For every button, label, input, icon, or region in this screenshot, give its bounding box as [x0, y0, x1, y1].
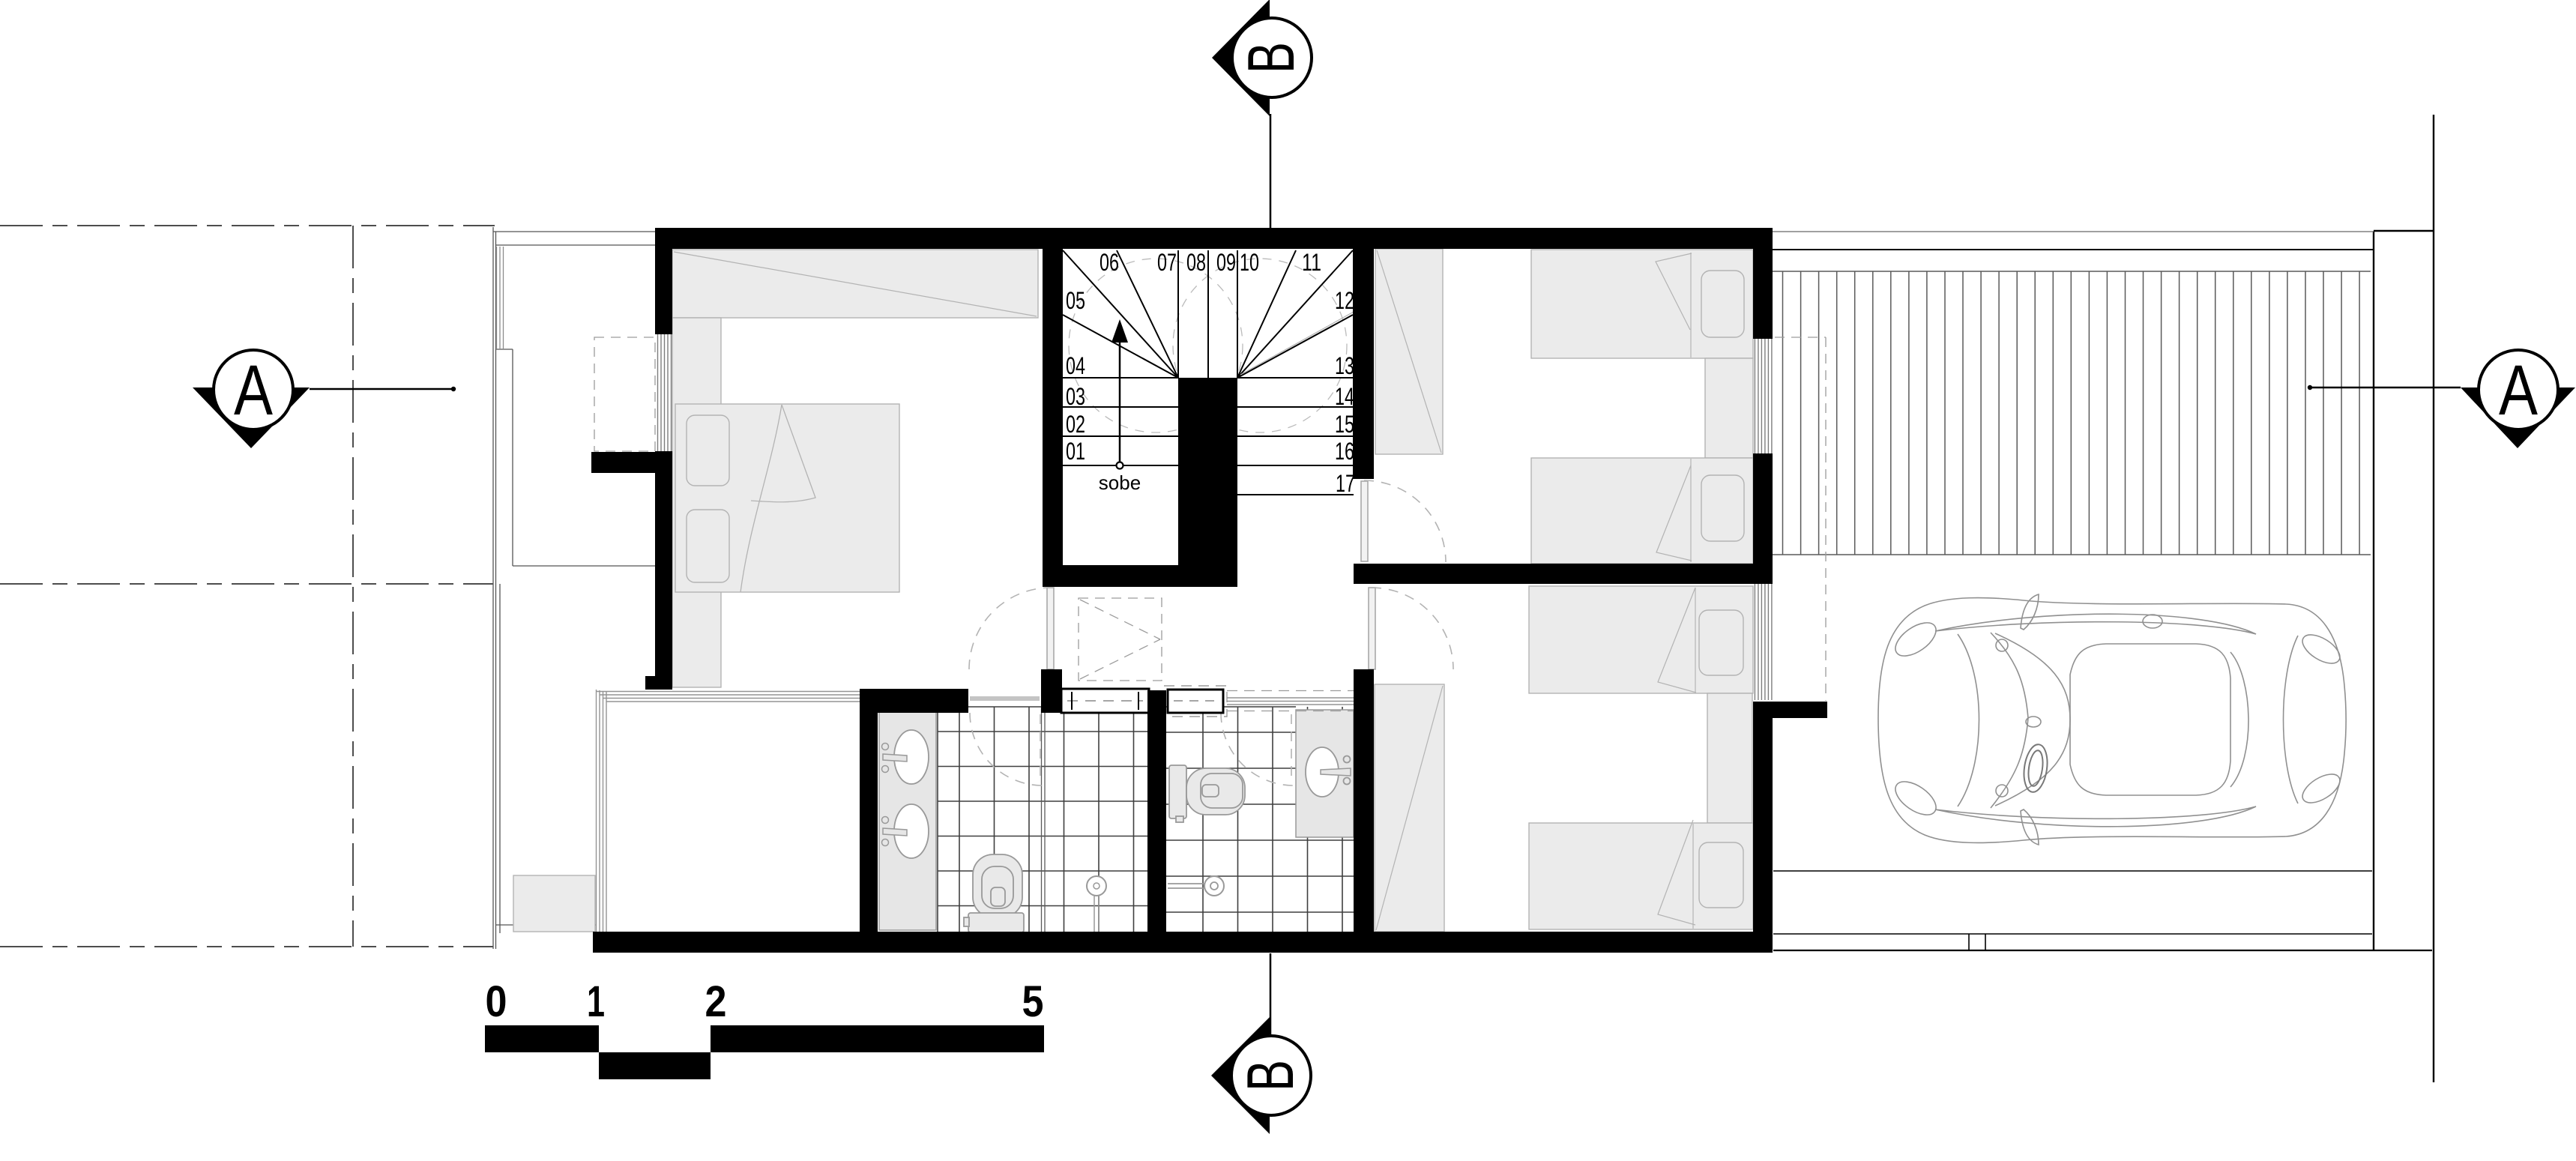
svg-text:10: 10 — [1240, 249, 1259, 276]
svg-text:17: 17 — [1336, 470, 1355, 497]
svg-text:13: 13 — [1335, 352, 1354, 379]
svg-text:07: 07 — [1157, 249, 1177, 276]
svg-text:12: 12 — [1335, 287, 1354, 314]
svg-text:01: 01 — [1066, 438, 1085, 465]
svg-text:B: B — [1233, 1060, 1307, 1091]
svg-text:0: 0 — [486, 977, 507, 1026]
svg-text:B: B — [1234, 42, 1308, 73]
svg-text:2: 2 — [705, 977, 727, 1026]
svg-text:08: 08 — [1186, 249, 1206, 276]
svg-text:06: 06 — [1100, 249, 1119, 276]
svg-text:03: 03 — [1066, 383, 1085, 410]
svg-text:05: 05 — [1066, 287, 1085, 314]
svg-text:16: 16 — [1335, 438, 1354, 465]
svg-text:04: 04 — [1066, 352, 1085, 379]
svg-text:11: 11 — [1302, 249, 1321, 276]
svg-text:sobe: sobe — [1099, 471, 1141, 494]
svg-text:A: A — [2499, 351, 2539, 430]
svg-text:15: 15 — [1335, 411, 1354, 438]
svg-text:5: 5 — [1022, 977, 1044, 1026]
svg-text:1: 1 — [587, 977, 605, 1026]
svg-text:A: A — [234, 351, 274, 430]
svg-text:09: 09 — [1216, 249, 1236, 276]
svg-text:14: 14 — [1335, 383, 1354, 410]
svg-text:02: 02 — [1066, 411, 1085, 438]
